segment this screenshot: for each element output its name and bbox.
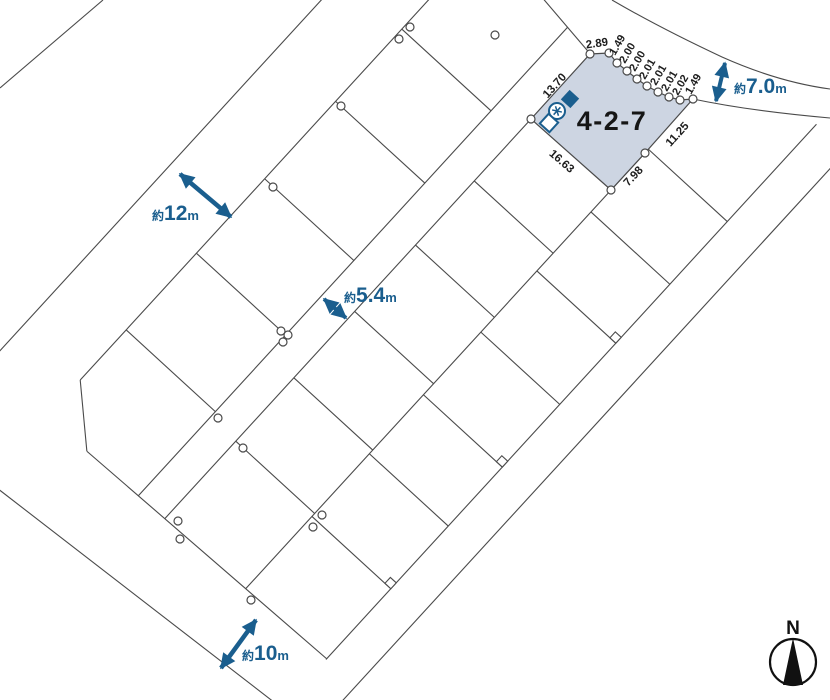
- boundary-marker-circle: [337, 102, 345, 110]
- boundary-marker-circle: [491, 31, 499, 39]
- boundary-marker-circle: [214, 414, 222, 422]
- lot-divider: [423, 395, 502, 467]
- right-angle-mark: [496, 456, 507, 467]
- boundary-marker-circle: [318, 511, 326, 519]
- lot-divider: [236, 441, 315, 513]
- plot-grid-lines: [0, 0, 830, 700]
- lot-divider: [336, 101, 425, 183]
- lot-divider: [474, 181, 553, 253]
- road-width-arrow-7-0m: [716, 63, 725, 101]
- right-angle-mark: [385, 577, 396, 588]
- road-width-arrow-5-4m: [324, 299, 346, 318]
- boundary-line: [138, 28, 567, 496]
- boundary-marker-circle: [641, 149, 649, 157]
- boundary-line: [0, 0, 323, 361]
- lot-divider: [648, 149, 727, 221]
- lot-divider: [415, 245, 494, 317]
- lot-divider: [265, 179, 354, 261]
- boundary-marker-circle: [406, 23, 414, 31]
- boundary-line: [165, 119, 531, 519]
- boundary-marker-circle: [284, 331, 292, 339]
- lot-divider: [481, 332, 560, 404]
- edge-measurement-top: 2.89: [585, 37, 609, 52]
- road-width-label-12m: 約12m: [152, 202, 199, 225]
- lot-divider: [312, 516, 391, 588]
- lot-divider: [402, 29, 491, 111]
- plot-map-canvas: 13.70 2.89 1.49 2.00 2.00 2.01 2.01 2.01…: [0, 0, 830, 700]
- boundary-marker-circle: [607, 186, 615, 194]
- lot-divider: [591, 212, 670, 284]
- plot-number-label: 4-2-7: [577, 106, 648, 136]
- road-curve-lower: [693, 99, 830, 118]
- boundary-line: [48, 380, 120, 451]
- boundary-marker-circle: [176, 535, 184, 543]
- boundary-marker-circle: [309, 523, 317, 531]
- compass-north-label: N: [786, 618, 800, 639]
- north-compass: N: [770, 618, 816, 685]
- boundary-line: [0, 0, 103, 88]
- boundary-line: [80, 0, 510, 380]
- lot-divider: [537, 271, 616, 343]
- lot-divider: [126, 330, 215, 412]
- lot-divider: [369, 454, 448, 526]
- road-boundary-lines: [0, 0, 830, 118]
- boundary-marker-circle: [247, 596, 255, 604]
- land-plot-map: 13.70 2.89 1.49 2.00 2.00 2.01 2.01 2.01…: [0, 0, 830, 700]
- boundary-line: [314, 166, 830, 700]
- road-width-label-10m: 約10m: [242, 642, 289, 665]
- road-width-label-5-4m: 約5.4m: [344, 284, 397, 307]
- boundary-marker-circle: [239, 444, 247, 452]
- road-edge: [87, 445, 327, 666]
- boundary-marker-circle: [279, 338, 287, 346]
- lot-divider: [196, 253, 285, 335]
- lot-divider: [355, 311, 434, 383]
- lot-divider: [294, 378, 373, 450]
- edge-segment-measurement: 1.49: [683, 72, 704, 97]
- boundary-marker-circle: [174, 517, 182, 525]
- boundary-marker-circle: [269, 183, 277, 191]
- road-width-labels: 約12m 約5.4m 約10m 約7.0m: [152, 75, 787, 665]
- boundary-marker-circle: [527, 115, 535, 123]
- boundary-line: [326, 124, 816, 659]
- boundary-marker-circle: [395, 35, 403, 43]
- right-angle-mark: [610, 332, 621, 343]
